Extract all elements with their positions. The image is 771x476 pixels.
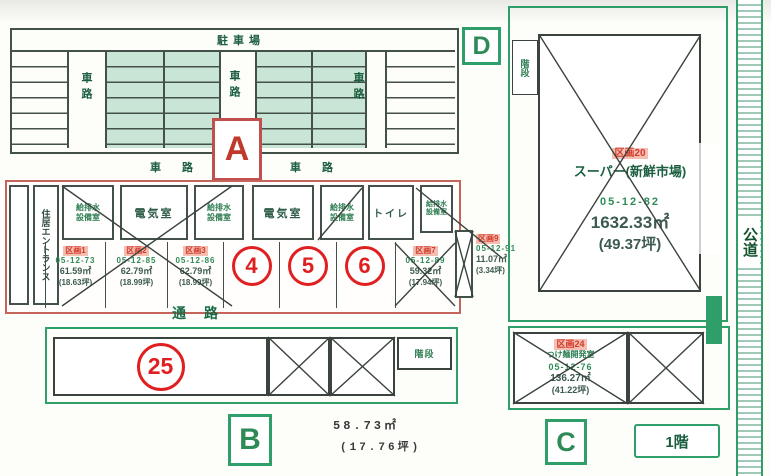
- crossed-room-b2: [330, 337, 395, 396]
- unit-cell-25-available: 25: [53, 337, 268, 396]
- unit-code: 05-12-82: [540, 196, 720, 208]
- unit-area-tsubo: (41.22坪): [552, 385, 590, 396]
- small-crossed-room: [455, 230, 473, 298]
- stall-divider: [163, 52, 165, 148]
- available-unit-number-25: 25: [137, 343, 185, 391]
- unit-area-sqm: 11.07㎡: [476, 254, 507, 265]
- toilet-label: トイレ: [373, 205, 409, 220]
- storage-room-3: 給排水 設備室: [320, 185, 364, 240]
- unit-cell-6-available: 6: [336, 242, 392, 308]
- parking-lot-label: 駐車場: [196, 32, 286, 48]
- floor-plan-page: 駐車場 車路 車路 車路 車 路 車 路 A D 住居エントランス 給排水 設備…: [0, 0, 771, 476]
- unit-area-sqm: 62.79㎡: [121, 266, 153, 277]
- crossed-room-b1: [268, 337, 330, 396]
- crossed-room-c1: [628, 332, 704, 404]
- floor-indicator: 1階: [634, 424, 720, 458]
- lane-label-vertical-1: 車路: [78, 72, 94, 104]
- unit-id: 区画20: [612, 148, 647, 159]
- unit-id: 区画1: [63, 246, 87, 256]
- parking-stalls-left: [12, 52, 69, 148]
- storage-label-line2: 設備室: [76, 213, 100, 222]
- block-marker-b: B: [228, 414, 272, 466]
- storage-room-1: 給排水 設備室: [62, 185, 114, 240]
- available-unit-number-6: 6: [345, 246, 385, 286]
- unit-id: 区画3: [183, 246, 207, 256]
- unit-code: 05-12-73: [55, 256, 95, 267]
- storage-label-line2: 設備室: [207, 213, 231, 222]
- unit-id: 区画7: [413, 246, 437, 256]
- stairs-label: 階段: [414, 347, 434, 360]
- unit-cell-1: 区画1 05-12-73 61.59㎡ (18.63坪): [45, 242, 105, 308]
- unit-area-sqm: 62.79㎡: [180, 266, 212, 277]
- available-unit-number-5: 5: [288, 246, 328, 286]
- unit-area-sqm: 1632.33㎡: [540, 208, 720, 233]
- unit-code: 05-12-85: [116, 256, 156, 267]
- block-marker-d: D: [462, 27, 501, 65]
- storage-label-line1: 給排水: [76, 203, 100, 212]
- stall-divider: [311, 52, 313, 148]
- storage-label-line1: 給排水: [330, 203, 354, 212]
- unit-cell-5-available: 5: [279, 242, 336, 308]
- unit-name: スーパー(新鮮市場): [540, 161, 720, 180]
- unit-area-tsubo: (18.63坪): [59, 278, 92, 288]
- block-marker-a: A: [212, 118, 262, 181]
- electric-room-label: 電気室: [135, 205, 174, 221]
- market-stairs-room: 階段: [512, 40, 538, 95]
- storage-room-2: 給排水 設備室: [194, 185, 244, 240]
- unit-area-sqm: 136.27㎡: [550, 373, 591, 386]
- b-area-sqm: 58.73㎡: [333, 416, 399, 433]
- unit-area-tsubo: (18.99坪): [120, 278, 153, 288]
- block-marker-c: C: [545, 419, 587, 465]
- available-unit-number-4: 4: [232, 246, 272, 286]
- b-area-tsubo: (17.76坪): [340, 438, 421, 454]
- storage-room-4: 給排水 設備室: [420, 185, 453, 233]
- b-stairs-room: 階段: [397, 337, 452, 370]
- lane-label-horizontal-1: 車 路: [150, 159, 202, 175]
- lane-label-vertical-3: 車路: [350, 72, 366, 104]
- storage-label-line1: 給排水: [426, 201, 447, 208]
- unit-id: 区画24: [554, 339, 586, 350]
- unit-cell-3: 区画3 05-12-86 62.79㎡ (18.99坪): [167, 242, 223, 308]
- unit-area-tsubo: (3.34坪): [476, 266, 505, 276]
- unit-area-tsubo: (18.99坪): [179, 278, 212, 288]
- parking-stalls-center-left: [105, 52, 221, 148]
- storage-label-line2: 設備室: [330, 213, 354, 222]
- passage-label: 通 路: [172, 303, 220, 323]
- lane-label-vertical-2: 車路: [226, 70, 242, 102]
- storage-label-line2: 設備室: [426, 209, 447, 216]
- unit-name: つけ麺開発室: [547, 350, 595, 360]
- side-corridor-room: [9, 185, 29, 305]
- unit-cell-7: 区画7 05-12-89 59.32㎡ (17.94坪): [395, 242, 455, 308]
- unit-area-tsubo: (49.37坪): [540, 233, 720, 254]
- electric-room-2: 電気室: [252, 185, 314, 240]
- unit-id: 区画9: [476, 234, 500, 244]
- storage-label-line1: 給排水: [207, 203, 231, 212]
- unit-cell-2: 区画2 05-12-85 62.79㎡ (18.99坪): [105, 242, 167, 308]
- stairs-label: 階段: [519, 59, 532, 77]
- unit-id: 区画2: [124, 246, 148, 256]
- unit-area-sqm: 59.32㎡: [410, 266, 442, 277]
- parking-stalls-right: [385, 52, 455, 148]
- public-road-label: 公道: [738, 216, 760, 268]
- unit-24-room: 区画24 つけ麺開発室 05-12-76 136.27㎡ (41.22坪): [513, 332, 628, 404]
- unit-code: 05-12-86: [175, 256, 215, 267]
- unit-cell-4-available: 4: [223, 242, 279, 308]
- electric-room-label: 電気室: [264, 205, 303, 221]
- electric-room-1: 電気室: [120, 185, 188, 240]
- unit-area-sqm: 61.59㎡: [60, 266, 92, 277]
- unit-code: 05-12-76: [548, 361, 592, 373]
- lane-label-horizontal-2: 車 路: [290, 159, 342, 175]
- unit-code: 05-12-89: [405, 256, 445, 267]
- unit-20-text: 区画20 スーパー(新鮮市場) 05-12-82 1632.33㎡ (49.37…: [540, 143, 720, 254]
- toilet-room: トイレ: [368, 185, 414, 240]
- unit-area-tsubo: (17.94坪): [409, 278, 442, 288]
